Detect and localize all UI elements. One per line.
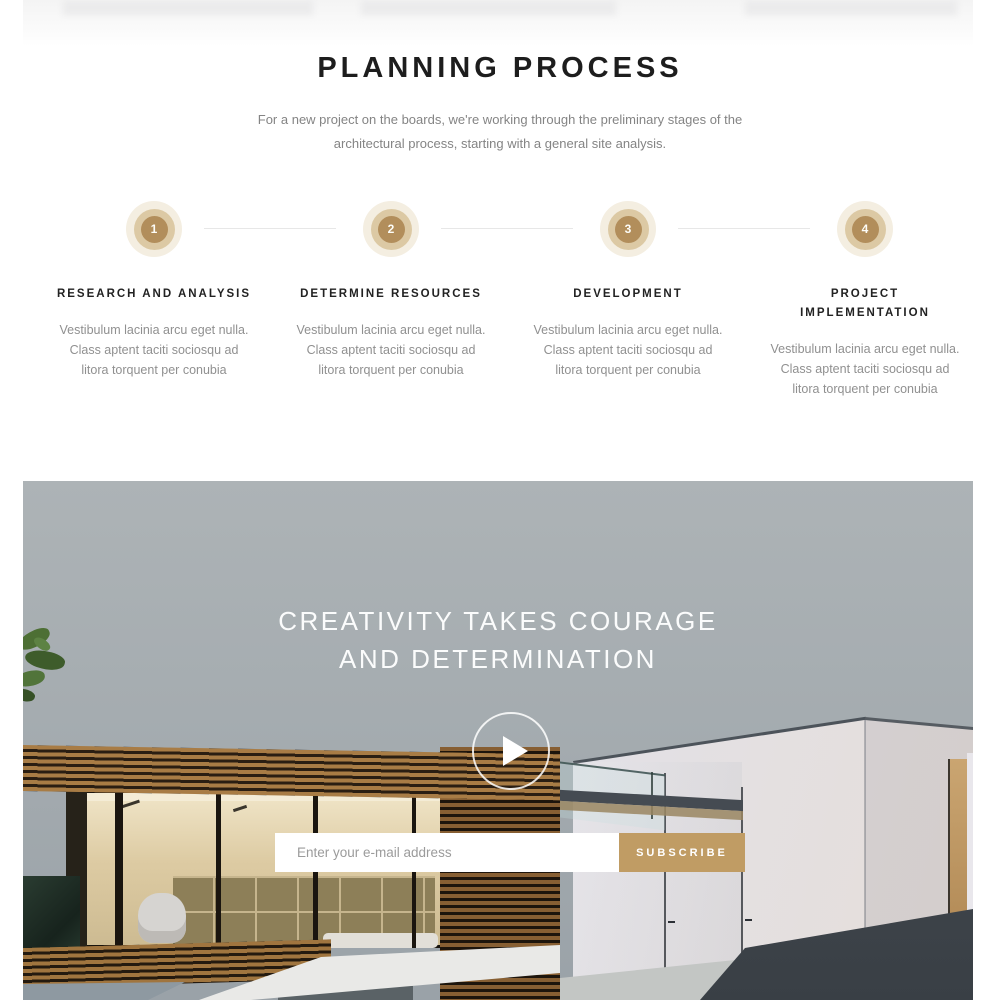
door-handle xyxy=(668,921,675,923)
process-step-1: 1 RESEARCH AND ANALYSIS Vestibulum lacin… xyxy=(44,201,264,380)
subtitle-line: architectural process, starting with a g… xyxy=(0,132,1000,156)
interior-chair xyxy=(138,893,186,943)
play-icon xyxy=(503,736,528,766)
step-description: Vestibulum lacinia arcu eget nulla. Clas… xyxy=(44,320,264,380)
process-step-4: 4 PROJECT IMPLEMENTATION Vestibulum laci… xyxy=(755,201,975,399)
window-mullion xyxy=(216,790,221,948)
step-number: 3 xyxy=(615,216,642,243)
step-title: DETERMINE RESOURCES xyxy=(281,285,501,304)
hero-heading: CREATIVITY TAKES COURAGE AND DETERMINATI… xyxy=(23,602,973,678)
step-badge: 4 xyxy=(837,201,893,257)
remnant-card xyxy=(361,0,616,15)
step-badge: 1 xyxy=(126,201,182,257)
step-description: Vestibulum lacinia arcu eget nulla. Clas… xyxy=(755,339,975,399)
newsletter-form: SUBSCRIBE xyxy=(275,833,745,872)
step-title: DEVELOPMENT xyxy=(518,285,738,304)
subtitle-line: For a new project on the boards, we're w… xyxy=(0,108,1000,132)
step-description: Vestibulum lacinia arcu eget nulla. Clas… xyxy=(518,320,738,380)
previous-section-remnant xyxy=(23,0,973,46)
building-corner xyxy=(864,720,866,955)
page-title: PLANNING PROCESS xyxy=(0,52,1000,85)
play-button[interactable] xyxy=(472,712,550,790)
step-title: PROJECT IMPLEMENTATION xyxy=(755,285,975,323)
step-number: 1 xyxy=(141,216,168,243)
interior-sofa xyxy=(323,933,438,948)
email-input[interactable] xyxy=(275,833,619,872)
door-handle xyxy=(745,919,752,921)
step-number: 2 xyxy=(378,216,405,243)
remnant-card xyxy=(63,0,313,15)
page: PLANNING PROCESS For a new project on th… xyxy=(0,0,1000,1000)
process-step-2: 2 DETERMINE RESOURCES Vestibulum lacinia… xyxy=(281,201,501,380)
balcony-glass xyxy=(23,876,80,949)
step-badge: 2 xyxy=(363,201,419,257)
remnant-card xyxy=(745,0,957,15)
window-mullion xyxy=(115,790,123,948)
step-description: Vestibulum lacinia arcu eget nulla. Clas… xyxy=(281,320,501,380)
step-badge: 3 xyxy=(600,201,656,257)
step-number: 4 xyxy=(852,216,879,243)
hero-section: CREATIVITY TAKES COURAGE AND DETERMINATI… xyxy=(23,481,973,1000)
step-title: RESEARCH AND ANALYSIS xyxy=(44,285,264,304)
process-step-3: 3 DEVELOPMENT Vestibulum lacinia arcu eg… xyxy=(518,201,738,380)
subscribe-button[interactable]: SUBSCRIBE xyxy=(619,833,745,872)
section-subtitle: For a new project on the boards, we're w… xyxy=(0,108,1000,156)
